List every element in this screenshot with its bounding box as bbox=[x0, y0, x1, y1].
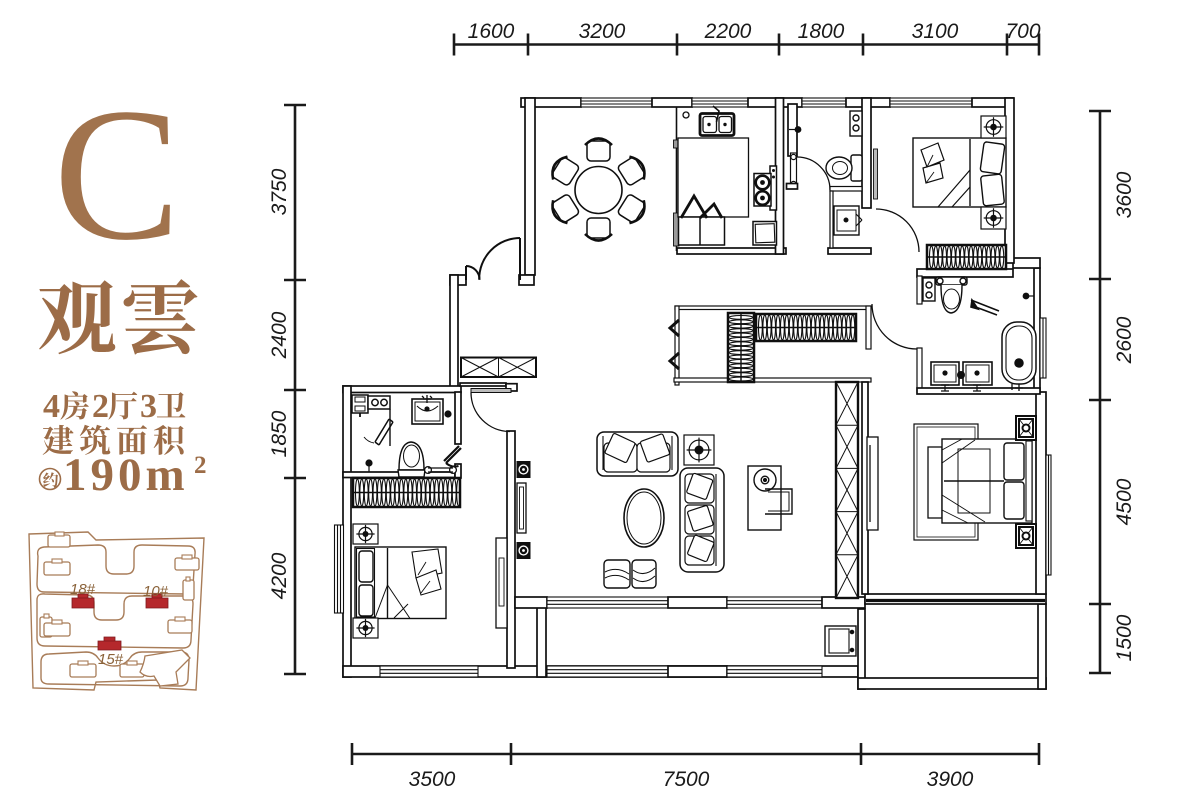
svg-text:C: C bbox=[54, 70, 181, 280]
svg-text:1850: 1850 bbox=[268, 410, 291, 457]
svg-text:2200: 2200 bbox=[704, 20, 752, 43]
svg-text:1800: 1800 bbox=[798, 20, 845, 43]
svg-text:3200: 3200 bbox=[579, 20, 626, 43]
svg-text:2400: 2400 bbox=[268, 311, 291, 359]
svg-text:3500: 3500 bbox=[409, 768, 456, 791]
svg-text:4500: 4500 bbox=[1113, 478, 1136, 525]
svg-text:3900: 3900 bbox=[927, 768, 974, 791]
svg-text:2: 2 bbox=[92, 388, 109, 425]
svg-text:18#: 18# bbox=[70, 581, 96, 598]
svg-text:10#: 10# bbox=[143, 583, 169, 600]
svg-text:1500: 1500 bbox=[1113, 614, 1136, 661]
svg-text:190m: 190m bbox=[63, 449, 189, 501]
svg-text:3100: 3100 bbox=[912, 20, 959, 43]
svg-text:2: 2 bbox=[194, 452, 207, 479]
svg-text:1600: 1600 bbox=[468, 20, 515, 43]
svg-text:3: 3 bbox=[140, 388, 157, 425]
svg-text:3600: 3600 bbox=[1113, 171, 1136, 218]
svg-text:15#: 15# bbox=[98, 651, 124, 668]
svg-text:2600: 2600 bbox=[1113, 316, 1136, 364]
svg-text:4: 4 bbox=[43, 388, 60, 425]
svg-text:7500: 7500 bbox=[663, 768, 710, 791]
svg-text:700: 700 bbox=[1005, 20, 1040, 43]
svg-text:4200: 4200 bbox=[268, 552, 291, 599]
svg-text:3750: 3750 bbox=[268, 168, 291, 215]
